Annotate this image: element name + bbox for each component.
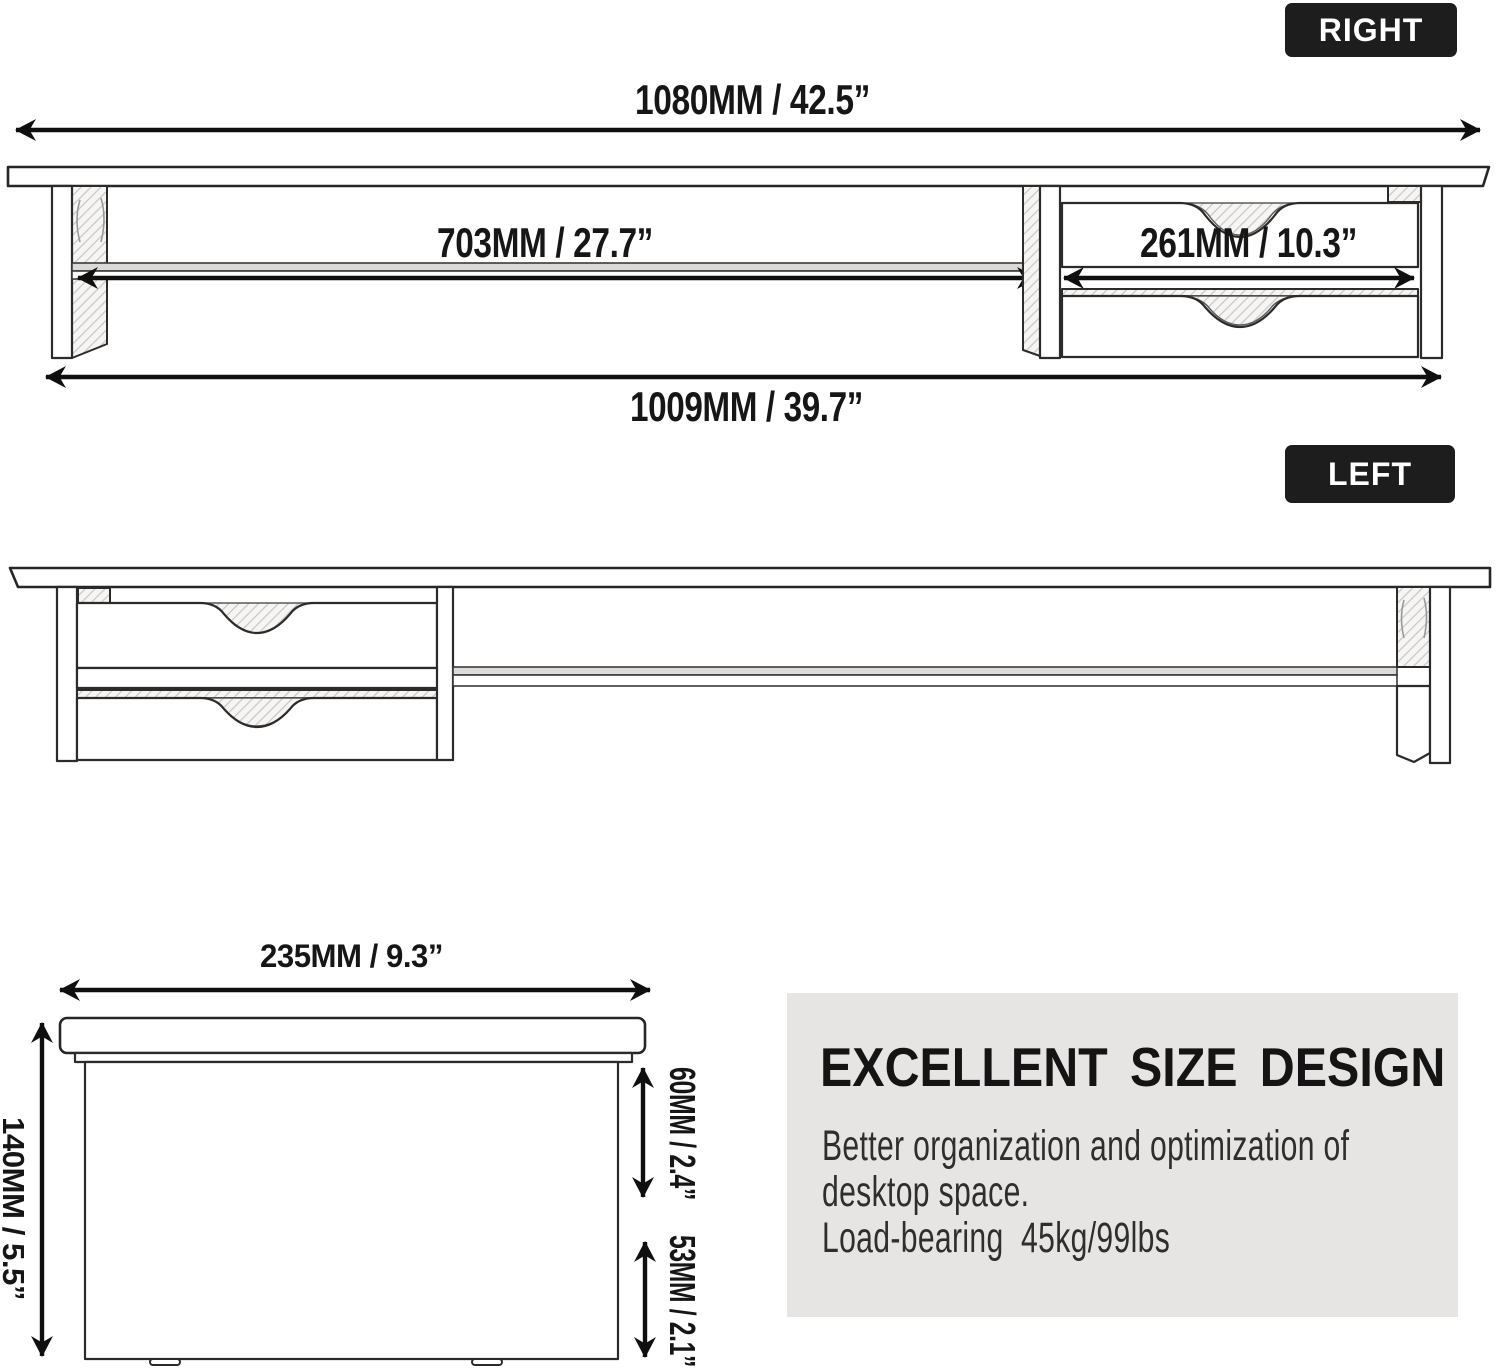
side-board-lip bbox=[75, 1053, 632, 1062]
stand-foot bbox=[150, 1359, 180, 1365]
stand-foot bbox=[472, 1359, 502, 1365]
dim-label-base-width: 1009MM / 39.7” bbox=[630, 383, 863, 430]
dim-label-height: 140MM / 5.5” bbox=[0, 1117, 31, 1300]
right-view-badge: RIGHT bbox=[1285, 3, 1457, 57]
left-leg bbox=[57, 587, 77, 761]
drawer-mid-rail bbox=[77, 668, 453, 688]
right-leg-lower bbox=[1397, 686, 1430, 762]
middle-shelf-top bbox=[453, 667, 1397, 675]
side-view: 235MM / 9.3” 140MM / 5.5” 60MM / 2.4” 53… bbox=[0, 938, 703, 1367]
dim-label-drawer-width: 261MM / 10.3” bbox=[1140, 219, 1357, 266]
side-body-box bbox=[85, 1062, 618, 1359]
dim-label-depth: 235MM / 9.3” bbox=[260, 938, 443, 974]
dim-label-drawer-height: 53MM / 2.1” bbox=[662, 1235, 703, 1367]
drawer-support-post bbox=[1040, 186, 1060, 358]
info-panel-line: Better organization and optimization of bbox=[822, 1123, 1438, 1169]
left-orientation-view bbox=[10, 568, 1490, 763]
dim-label-shelf-width: 703MM / 27.7” bbox=[437, 219, 653, 266]
corner-bracket bbox=[78, 588, 110, 603]
middle-shelf-edge bbox=[453, 675, 1397, 686]
monitor-stand-dimension-infographic: 1080MM / 42.5” 703MM / 27.7” 261MM / 10.… bbox=[0, 0, 1500, 1368]
info-panel-heading: EXCELLENT SIZE DESIGN bbox=[820, 1040, 1445, 1095]
info-panel-body: Better organization and optimization of … bbox=[822, 1123, 1438, 1261]
info-panel-line: desktop space. bbox=[822, 1169, 1438, 1215]
right-leg bbox=[1421, 186, 1442, 358]
corner-bracket bbox=[1388, 186, 1421, 202]
right-leg bbox=[1430, 587, 1450, 763]
drawer-support-post bbox=[437, 587, 453, 760]
tabletop-left-view bbox=[10, 568, 1490, 587]
lower-drawer-rail bbox=[77, 690, 437, 698]
dim-label-clearance: 60MM / 2.4” bbox=[662, 1067, 703, 1200]
drawer-support-side-face bbox=[1023, 186, 1040, 356]
left-view-badge: LEFT bbox=[1285, 445, 1455, 503]
tabletop-right-view bbox=[8, 167, 1489, 186]
info-panel-line: Load-bearing 45kg/99lbs bbox=[822, 1215, 1438, 1261]
left-leg bbox=[52, 186, 72, 358]
info-panel: EXCELLENT SIZE DESIGN Better organizatio… bbox=[787, 993, 1458, 1317]
dim-label-overall-width: 1080MM / 42.5” bbox=[635, 76, 870, 123]
side-top-board bbox=[60, 1018, 645, 1053]
right-orientation-view: 1080MM / 42.5” 703MM / 27.7” 261MM / 10.… bbox=[8, 76, 1489, 430]
